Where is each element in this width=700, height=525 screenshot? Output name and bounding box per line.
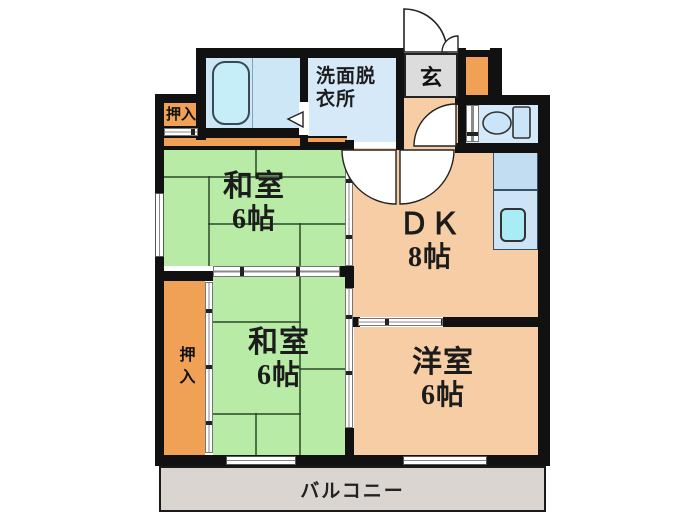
washroom-door-swing	[342, 150, 396, 204]
washroom-label: 洗面脱 衣所	[316, 66, 396, 112]
washitsu-upper-label: 和室 6帖	[184, 170, 324, 235]
washitsu-lower-label: 和室 6帖	[209, 326, 349, 391]
washroom-label-line1: 洗面脱	[316, 66, 396, 89]
dk-label: ＤＫ 8帖	[355, 208, 505, 273]
entrance-door-swing	[404, 9, 447, 52]
washitsu-upper-name: 和室	[184, 170, 324, 204]
dk-name: ＤＫ	[355, 208, 505, 242]
washitsu-lower-size: 6帖	[209, 360, 349, 391]
bathroom-folding-door	[288, 112, 303, 127]
youshitsu-label: 洋室 6帖	[368, 346, 518, 411]
washitsu-upper-size: 6帖	[184, 204, 324, 235]
toilet-bowl-icon	[483, 112, 511, 134]
toilet-tank-icon	[513, 107, 530, 138]
dk-size: 8帖	[355, 242, 505, 273]
floorplan-canvas: 押入 押入 玄	[0, 0, 700, 525]
washitsu-lower-name: 和室	[209, 326, 349, 360]
hall-door-swing	[414, 104, 456, 146]
washroom-label-line2: 衣所	[316, 89, 396, 112]
youshitsu-name: 洋室	[368, 346, 518, 380]
dk-door-swing	[400, 150, 454, 204]
youshitsu-size: 6帖	[368, 380, 518, 411]
